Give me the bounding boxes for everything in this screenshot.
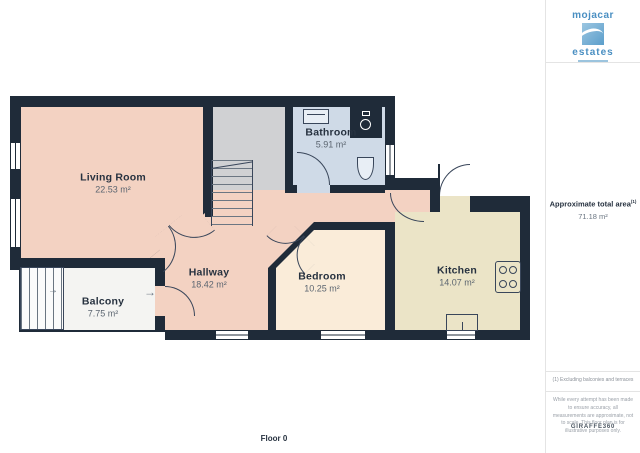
door-opening bbox=[155, 286, 165, 316]
window bbox=[10, 142, 21, 170]
entry-arrow-icon: → bbox=[48, 286, 58, 296]
entrance-door-arc bbox=[439, 164, 470, 196]
window bbox=[320, 330, 366, 340]
door-leaf bbox=[438, 164, 440, 197]
brand-name-top: mojacar bbox=[546, 10, 640, 21]
kitchen-sink-unit bbox=[446, 314, 478, 331]
sidebar-divider bbox=[546, 371, 640, 372]
stove-icon bbox=[495, 261, 521, 293]
stairs-interior bbox=[211, 160, 253, 226]
total-area-footnote-marker: (1) bbox=[631, 199, 637, 204]
sink-icon bbox=[303, 109, 329, 124]
entry-arrow-icon: → bbox=[144, 287, 156, 297]
door-opening bbox=[297, 185, 330, 193]
sidebar-divider-vertical bbox=[545, 0, 546, 453]
giraffe360-credit: GIRAFFE360 bbox=[546, 424, 640, 430]
brand-name-bottom: estates bbox=[546, 47, 640, 58]
toilet-block bbox=[350, 107, 382, 138]
window bbox=[446, 330, 476, 340]
logo-mark-icon bbox=[582, 23, 604, 45]
toilet-tank bbox=[362, 111, 370, 116]
total-area-label: Approximate total area bbox=[550, 200, 631, 209]
floor-plan-page: → → Living Room 22.53 m² Bathroom 5.91 m… bbox=[0, 0, 640, 453]
total-area-block: Approximate total area(1) 71.18 m² bbox=[546, 199, 640, 221]
window bbox=[215, 330, 249, 340]
window bbox=[385, 144, 395, 176]
floor-label: Floor 0 bbox=[249, 434, 299, 443]
total-area-value: 71.18 m² bbox=[546, 212, 640, 221]
mojacar-estates-logo: mojacar estates bbox=[546, 10, 640, 62]
area-footnote: (1) Excluding balconies and terraces bbox=[546, 377, 640, 383]
wall bbox=[285, 107, 293, 193]
balcony-railing bbox=[19, 330, 167, 332]
sidebar-divider bbox=[546, 62, 640, 63]
sidebar-divider bbox=[546, 391, 640, 392]
door-opening bbox=[440, 196, 470, 212]
stairs-exterior bbox=[20, 267, 64, 330]
toilet-icon bbox=[360, 119, 371, 130]
window bbox=[10, 198, 21, 248]
